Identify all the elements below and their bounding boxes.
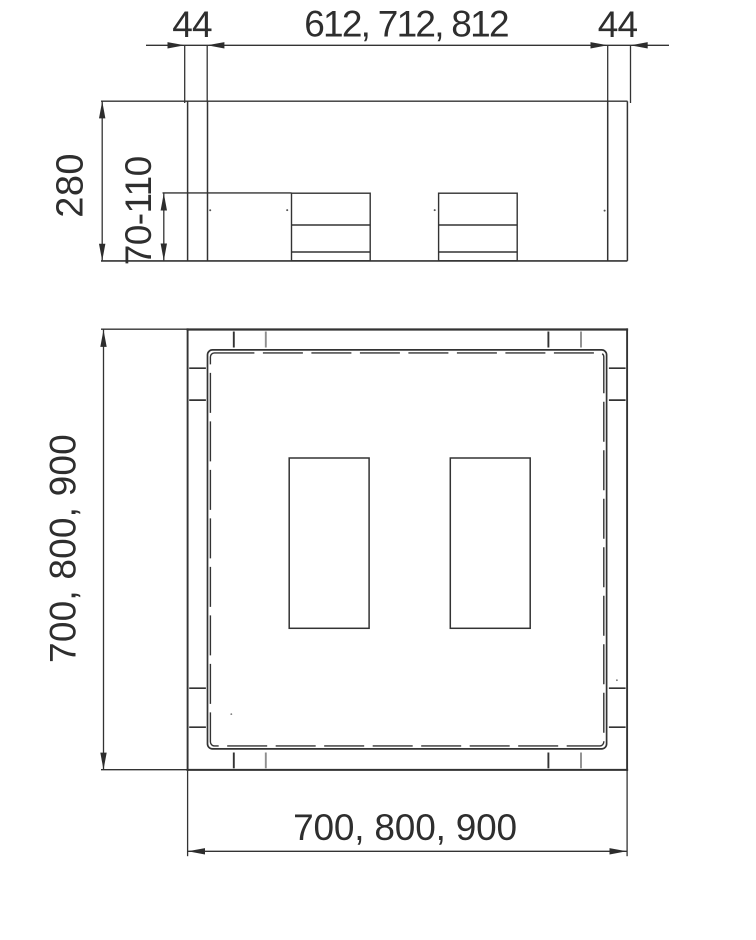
svg-text:700, 800, 900: 700, 800, 900	[43, 434, 84, 663]
svg-text:70-110: 70-110	[118, 156, 159, 265]
svg-text:44: 44	[598, 4, 638, 45]
svg-text:44: 44	[172, 4, 212, 45]
svg-text:612, 712, 812: 612, 712, 812	[304, 4, 508, 45]
svg-text:280: 280	[50, 153, 92, 218]
svg-text:700, 800, 900: 700, 800, 900	[293, 807, 517, 848]
